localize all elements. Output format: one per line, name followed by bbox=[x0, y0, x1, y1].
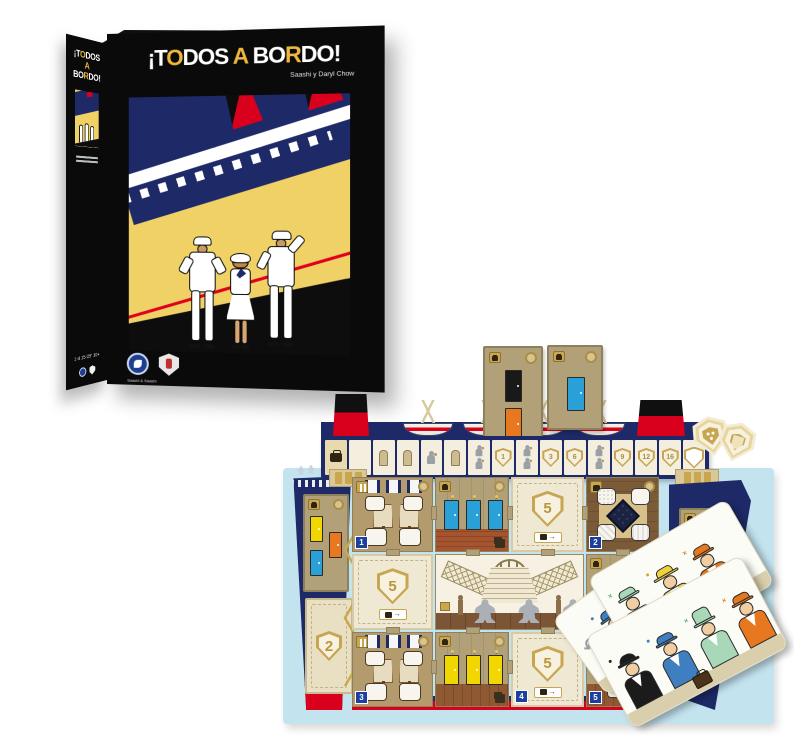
leg bbox=[235, 320, 239, 343]
cabin-tile-top-right bbox=[547, 345, 603, 430]
publisher-logo-icon: Saashi & Saashi bbox=[127, 352, 149, 375]
cabin-room-blue bbox=[435, 477, 509, 552]
staircase-steps bbox=[481, 567, 539, 603]
shield-icon: 9 bbox=[614, 448, 631, 467]
track-cell-shield: 12 bbox=[635, 440, 657, 475]
dining-room-3: 3 bbox=[352, 632, 433, 707]
box-title: ¡TODOS A BORDO! bbox=[107, 39, 385, 73]
slot bbox=[345, 472, 352, 484]
leg bbox=[243, 321, 247, 344]
track-cell bbox=[516, 440, 538, 475]
shoe bbox=[203, 344, 214, 348]
funnel-left bbox=[333, 394, 369, 436]
figure-icon bbox=[451, 450, 460, 466]
suitcase-icon bbox=[330, 453, 342, 462]
lamp-icon bbox=[473, 495, 476, 498]
badge-icon bbox=[494, 636, 505, 647]
lamp-icon bbox=[451, 650, 454, 653]
shield-icon: 12 bbox=[638, 448, 655, 467]
suitcase-icon bbox=[439, 481, 451, 492]
armchair bbox=[403, 651, 423, 666]
blue-door bbox=[466, 500, 481, 530]
lamp-icon bbox=[495, 495, 498, 498]
shield-icon: 1 bbox=[495, 448, 512, 467]
mini-figure bbox=[85, 123, 89, 144]
box-cover-art bbox=[129, 93, 350, 356]
funnel-right bbox=[637, 400, 685, 436]
mini-funnel-icon bbox=[85, 89, 92, 97]
armchair bbox=[631, 488, 650, 505]
time-stat: 15-25' bbox=[81, 353, 92, 361]
track-cell-shield: 1 bbox=[492, 440, 514, 475]
shield-icon: 3 bbox=[542, 448, 559, 467]
porter-icon bbox=[593, 458, 603, 470]
cabin-tile-top-left bbox=[483, 346, 543, 442]
badge-icon bbox=[418, 636, 429, 647]
blank-shield-icon bbox=[684, 447, 704, 469]
leg bbox=[270, 285, 279, 339]
lifeboat-hull bbox=[403, 423, 453, 436]
suitcase-icon bbox=[489, 352, 501, 363]
room-number-badge: 1 bbox=[356, 537, 367, 548]
suitcase-icon bbox=[308, 499, 320, 510]
leg bbox=[283, 285, 292, 339]
armchair bbox=[365, 528, 387, 546]
mini-figure bbox=[79, 124, 83, 143]
porthole-badge-icon bbox=[585, 351, 597, 363]
suit-mark-icon: ● bbox=[644, 571, 651, 579]
black-door bbox=[505, 370, 522, 402]
armchair bbox=[399, 528, 421, 546]
lamp-icon bbox=[495, 650, 498, 653]
publisher-name: Saashi & Saashi bbox=[125, 378, 159, 384]
shield-icon: 6 bbox=[566, 448, 583, 467]
porter-icon bbox=[522, 445, 532, 457]
shoe bbox=[189, 344, 200, 348]
armchair bbox=[365, 651, 385, 666]
tile-connector bbox=[507, 660, 513, 674]
davit-lines bbox=[411, 400, 445, 424]
porter-icon bbox=[593, 445, 603, 457]
suit-mark-icon: ● bbox=[589, 615, 597, 623]
track-cell bbox=[588, 440, 610, 475]
tile-connector bbox=[466, 627, 480, 634]
armchair bbox=[597, 488, 616, 505]
tile-connector bbox=[582, 506, 588, 520]
tile-connector bbox=[431, 506, 437, 520]
tile-connector bbox=[466, 549, 480, 556]
game-board: 1 3 6 9 12 16 bbox=[283, 338, 779, 738]
box-logos: Saashi & Saashi bbox=[127, 352, 179, 376]
luggage-score-track: 1 3 6 9 12 16 bbox=[321, 436, 709, 479]
suit-mark-icon: × bbox=[607, 593, 614, 601]
yellow-door bbox=[488, 655, 503, 685]
yellow-door bbox=[310, 516, 323, 542]
edition-logo-icon bbox=[89, 365, 95, 376]
tile-connector bbox=[541, 627, 555, 634]
age-stat: 10+ bbox=[93, 351, 100, 358]
track-cell bbox=[468, 440, 490, 475]
leg bbox=[204, 290, 213, 341]
slot bbox=[694, 472, 701, 484]
newel-post bbox=[458, 599, 463, 615]
luggage-cart-icon bbox=[495, 539, 505, 548]
spine-title: ¡TODOS A BORDO! bbox=[73, 48, 100, 84]
suitcase-icon bbox=[439, 636, 451, 647]
blue-door bbox=[567, 377, 585, 411]
suit-mark-icon: × bbox=[681, 550, 688, 558]
slot bbox=[335, 472, 342, 484]
yellow-door bbox=[444, 655, 459, 685]
porter-icon bbox=[425, 451, 437, 465]
figure-icon bbox=[403, 450, 412, 466]
track-cell bbox=[444, 440, 466, 475]
lamp-icon bbox=[473, 650, 476, 653]
suitcase-move-icon bbox=[534, 687, 562, 698]
room-number-badge: 2 bbox=[590, 537, 601, 548]
porter-icon bbox=[474, 445, 484, 457]
dining-room-1: 1 bbox=[352, 477, 433, 552]
leg bbox=[191, 290, 200, 341]
spine-credits-text bbox=[76, 153, 98, 165]
track-cell bbox=[373, 440, 395, 475]
porthole-badge-icon bbox=[525, 352, 537, 364]
track-cell-shield: 3 bbox=[540, 440, 562, 475]
torso bbox=[189, 252, 216, 293]
yellow-door bbox=[466, 655, 481, 685]
box-spine: ¡TODOS A BORDO! 1-4 15-25' 10+ bbox=[66, 34, 107, 391]
skirt bbox=[226, 294, 255, 321]
promenade-tile-row1: 5 bbox=[511, 477, 584, 552]
suitcase-icon bbox=[553, 351, 565, 362]
track-cell bbox=[397, 440, 419, 475]
lifeboat bbox=[403, 400, 453, 436]
porter-icon bbox=[522, 458, 532, 470]
figure-icon bbox=[379, 450, 388, 466]
porter-icon bbox=[474, 458, 484, 470]
edition-logo-icon bbox=[159, 353, 179, 376]
spine-stats: 1-4 15-25' 10+ bbox=[74, 351, 99, 364]
players-stat: 1-4 bbox=[74, 355, 80, 363]
armchair bbox=[365, 683, 387, 701]
room-number-badge: 5 bbox=[590, 692, 601, 703]
track-cell bbox=[421, 440, 443, 475]
utensils-icon bbox=[356, 636, 368, 648]
blue-door bbox=[488, 500, 503, 530]
passenger-woman-center bbox=[222, 253, 261, 352]
tile-connector bbox=[541, 549, 555, 556]
armchair bbox=[403, 496, 423, 511]
blue-door bbox=[444, 500, 459, 530]
publisher-logo-icon bbox=[79, 367, 86, 378]
armchair bbox=[365, 496, 385, 511]
shoe bbox=[267, 342, 279, 346]
promenade-tile-left: 5 bbox=[352, 554, 433, 630]
tile-connector bbox=[386, 627, 400, 634]
suit-mark-icon: ● bbox=[607, 658, 614, 666]
utensils-icon bbox=[356, 481, 368, 493]
passenger-man-left bbox=[181, 236, 224, 348]
badge-icon bbox=[418, 481, 429, 492]
tile-connector bbox=[386, 549, 400, 556]
passenger-man-right bbox=[259, 231, 303, 347]
suitcase-move-icon bbox=[534, 532, 562, 543]
tile-connector bbox=[431, 660, 437, 674]
game-room-2: 2 bbox=[586, 477, 659, 552]
track-cell-shield: 6 bbox=[564, 440, 586, 475]
shoe bbox=[241, 345, 249, 349]
tile-connector bbox=[507, 506, 513, 520]
slot bbox=[684, 472, 691, 484]
game-box: ¡TODOS A BORDO! 1-4 15-25' 10+ bbox=[55, 28, 377, 390]
cabin-room-yellow bbox=[435, 632, 509, 707]
blue-door bbox=[310, 550, 323, 576]
shield-icon: 16 bbox=[662, 448, 679, 467]
suit-mark-icon: × bbox=[683, 617, 690, 625]
badge-icon bbox=[494, 481, 505, 492]
spine-mini-art bbox=[75, 89, 99, 148]
suit-mark-icon: × bbox=[721, 597, 728, 605]
suitcase-icon bbox=[440, 602, 450, 611]
shoe bbox=[232, 345, 240, 349]
armchair bbox=[399, 683, 421, 701]
suit-mark-icon: ● bbox=[645, 637, 652, 645]
spine-logos bbox=[79, 365, 96, 378]
lamp-icon bbox=[451, 495, 454, 498]
luggage-cart-icon bbox=[495, 694, 505, 703]
armchair bbox=[631, 524, 650, 541]
product-photo-stage: ¡TODOS A BORDO! 1-4 15-25' 10+ bbox=[0, 0, 794, 748]
suitcase-icon bbox=[590, 558, 602, 569]
room-number-badge: 3 bbox=[356, 692, 367, 703]
track-cell-shield: 9 bbox=[612, 440, 634, 475]
suitcase-move-icon bbox=[379, 609, 407, 620]
room-number-badge: 4 bbox=[516, 691, 527, 702]
